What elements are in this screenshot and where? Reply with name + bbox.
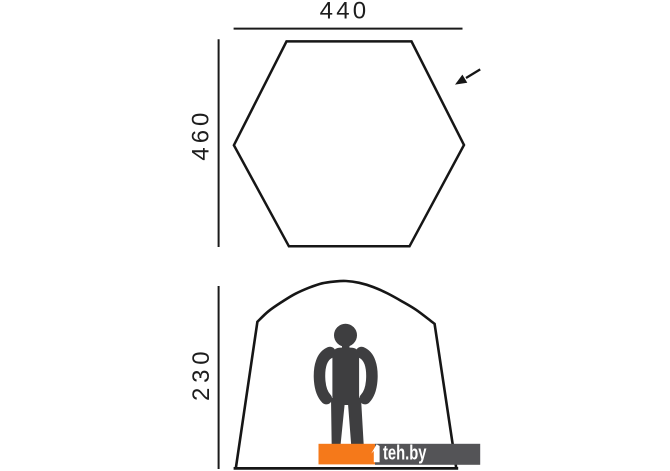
svg-text:230: 230 bbox=[188, 351, 215, 401]
svg-text:teh.by: teh.by bbox=[383, 442, 427, 464]
svg-text:440: 440 bbox=[320, 0, 367, 25]
svg-text:460: 460 bbox=[188, 113, 215, 161]
